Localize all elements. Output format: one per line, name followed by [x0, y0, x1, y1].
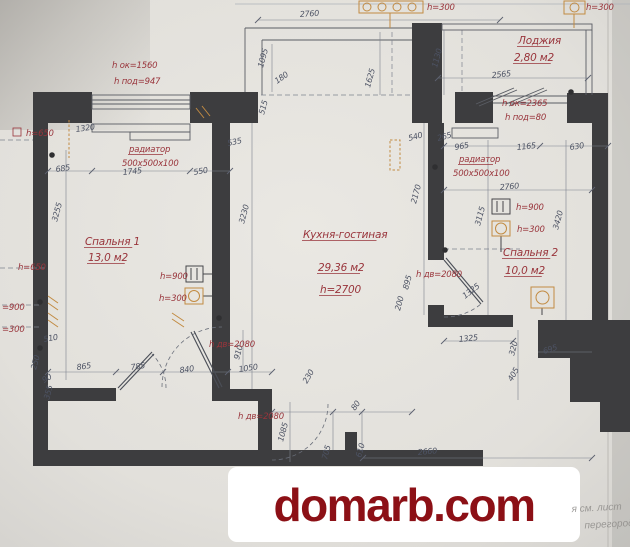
watermark-text: domarb.com: [273, 478, 534, 532]
height-label: h под=80: [505, 113, 546, 123]
height-label: h=650: [18, 263, 46, 273]
room-label: Лоджия: [517, 35, 561, 47]
wall-segment: [212, 389, 272, 401]
floor-plan-photo: 2760109518051516251130256553555013206851…: [0, 0, 630, 547]
height-label: =300: [2, 325, 25, 335]
wall-segment: [48, 388, 116, 401]
room-label: h=2700: [320, 284, 361, 296]
room-label: 10,0 м2: [505, 265, 545, 277]
height-label: h ок=2365: [502, 99, 547, 109]
wall-segment: [428, 315, 513, 327]
wall-segment: [190, 92, 258, 123]
wall-segment: [455, 92, 493, 123]
height-label: h=300: [517, 225, 545, 235]
room-label: Спальня 2: [503, 247, 558, 259]
height-label: h дв=2080: [416, 270, 462, 280]
wall-segment: [428, 123, 444, 260]
height-label: h ок=1560: [112, 61, 157, 71]
wall-segment: [567, 93, 608, 123]
floor-plan-svg: 2760109518051516251130256553555013206851…: [0, 0, 630, 547]
height-label: h дв=2080: [209, 340, 255, 350]
paper-edge-strip: [612, 0, 630, 547]
height-label: h=900: [516, 203, 544, 213]
height-label: h=300: [159, 294, 187, 304]
height-label: радиатор: [128, 145, 170, 155]
height-label: h под=947: [114, 77, 161, 87]
corner-note: я см. лист перегород: [571, 495, 630, 535]
height-label: h=900: [160, 272, 188, 282]
dimension-label: 2760: [300, 9, 320, 19]
height-label: 500х500х100: [122, 159, 179, 169]
wall-segment: [33, 110, 48, 462]
room-label: 13,0 м2: [88, 252, 128, 264]
wall-segment: [412, 23, 442, 123]
height-label: h=300: [586, 3, 614, 13]
height-label: =900: [2, 303, 25, 313]
dimension-label: 2760: [499, 181, 519, 192]
wall-segment: [592, 123, 608, 322]
height-label: h=300: [427, 3, 455, 13]
room-label: Спальня 1: [85, 236, 140, 248]
height-label: радиатор: [458, 155, 500, 165]
room-label: 29,36 м2: [318, 262, 365, 274]
dimension-label: 2660: [417, 446, 437, 457]
room-label: 2,80 м2: [514, 52, 554, 64]
height-label: h=650: [26, 129, 54, 139]
room-label: Кухня-гостиная: [303, 229, 387, 241]
height-label: 500х500х100: [453, 169, 510, 179]
wall-segment: [570, 356, 630, 402]
height-label: h дв=2080: [238, 412, 284, 422]
watermark-banner: domarb.com: [228, 467, 580, 542]
wall-segment: [600, 400, 630, 432]
